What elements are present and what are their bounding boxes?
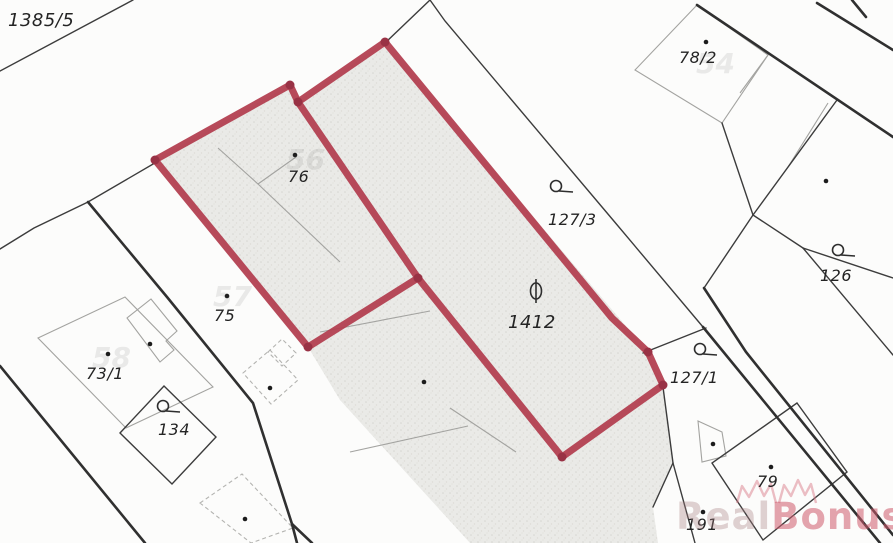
watermark-text-bonus: Bonus [771,495,893,538]
parcel-label-76: 76 [288,169,309,185]
parcel-label-73-1: 73/1 [86,366,124,382]
realbonus-watermark: RealBonus.cz [676,498,893,535]
parcel-label-127-1: 127/1 [670,370,719,386]
dashed-building-outlines [200,339,298,543]
parcel-label-134: 134 [158,422,190,438]
circle-flag-symbol [695,344,718,356]
parcel-label-78-2: 78/2 [679,50,717,66]
watermark-text-real: Real [676,495,771,538]
parcel-label-75: 75 [214,308,235,324]
map-drawing [0,0,893,543]
parcel-label-127-3: 127/3 [548,212,597,228]
circle-flag-symbol [551,181,574,193]
cadastral-map-canvas[interactable]: 56 57 58 54 1385/5 78/2 76 127/3 126 75 … [0,0,893,543]
circle-flag-symbol [833,245,856,257]
parcel-label-79: 79 [757,474,778,490]
parcel-label-1412: 1412 [508,314,556,332]
circle-flag-symbol [158,401,181,413]
parcel-label-126: 126 [820,268,852,284]
parcel-label-1385-5: 1385/5 [8,12,74,30]
